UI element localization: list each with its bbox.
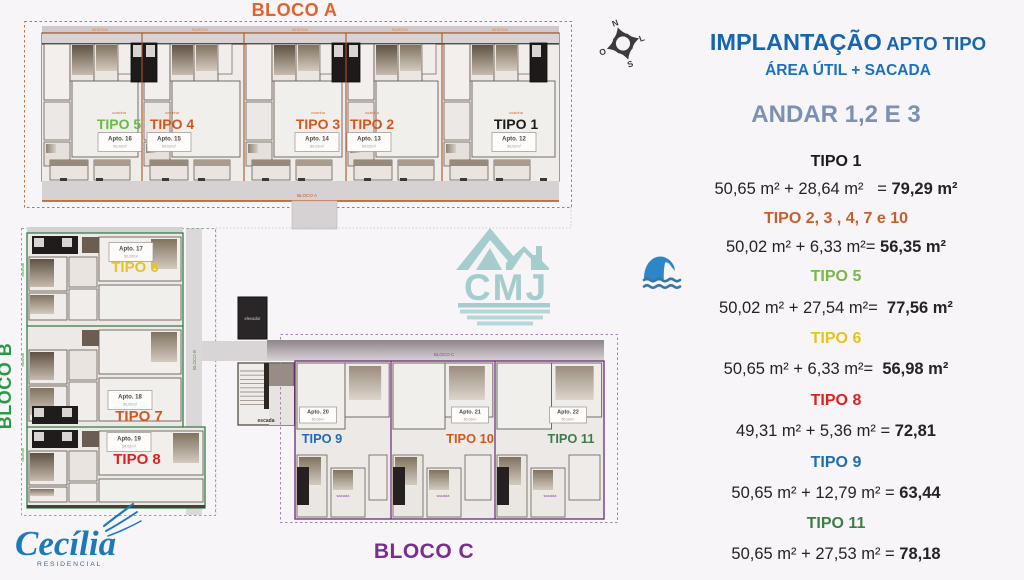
svg-text:sacada: sacada <box>437 493 451 498</box>
svg-text:BLOCO A: BLOCO A <box>492 28 508 32</box>
svg-text:TIPO 3: TIPO 3 <box>296 116 341 132</box>
svg-text:50,02m²: 50,02m² <box>362 145 377 149</box>
svg-text:sacada: sacada <box>337 493 351 498</box>
svg-text:TIPO 9: TIPO 9 <box>302 431 343 446</box>
svg-text:TIPO 6: TIPO 6 <box>111 259 159 276</box>
svg-text:BLOCO A: BLOCO A <box>192 28 208 32</box>
svg-text:Apto. 13: Apto. 13 <box>357 137 381 143</box>
svg-text:50,02m²: 50,02m² <box>162 145 177 149</box>
svg-text:BLOCO C: BLOCO C <box>374 540 474 563</box>
svg-text:TIPO 9: TIPO 9 <box>811 454 862 471</box>
svg-text:50,02m²: 50,02m² <box>312 418 326 422</box>
svg-text:cozinha: cozinha <box>165 110 180 115</box>
svg-text:BLOCO A: BLOCO A <box>92 28 108 32</box>
svg-text:TIPO 8: TIPO 8 <box>113 451 161 468</box>
svg-text:TIPO 11: TIPO 11 <box>548 431 595 446</box>
svg-text:BLOCO A: BLOCO A <box>297 193 317 198</box>
svg-text:Apto. 17: Apto. 17 <box>119 247 143 253</box>
svg-text:varanda: varanda <box>21 352 25 367</box>
svg-text:TIPO 8: TIPO 8 <box>811 392 862 409</box>
svg-text:50,02m²: 50,02m² <box>464 418 478 422</box>
svg-text:50,02m²: 50,02m² <box>124 255 139 259</box>
svg-text:50,02m²: 50,02m² <box>562 418 576 422</box>
svg-text:TIPO 7: TIPO 7 <box>115 408 163 425</box>
svg-text:Cecília: Cecília <box>15 524 116 563</box>
svg-text:Apto. 12: Apto. 12 <box>502 137 526 143</box>
svg-text:varanda: varanda <box>21 447 25 462</box>
svg-text:Apto. 16: Apto. 16 <box>108 137 132 143</box>
svg-text:IMPLANTAÇÃO APTO TIPO: IMPLANTAÇÃO APTO TIPO <box>710 28 986 55</box>
svg-text:BLOCO C: BLOCO C <box>434 352 455 357</box>
svg-text:sacada: sacada <box>544 493 558 498</box>
svg-text:50,65 m² + 27,53 m² = 78,18: 50,65 m² + 27,53 m² = 78,18 <box>731 545 940 563</box>
svg-text:ANDAR 1,2 E 3: ANDAR 1,2 E 3 <box>751 101 920 128</box>
svg-text:escada: escada <box>258 418 275 424</box>
svg-text:BLOCO B: BLOCO B <box>192 350 197 370</box>
svg-text:50,02m²: 50,02m² <box>310 145 325 149</box>
svg-text:TIPO 5: TIPO 5 <box>811 268 862 285</box>
svg-text:BLOCO A: BLOCO A <box>392 28 408 32</box>
svg-text:BLOCO B: BLOCO B <box>0 343 15 430</box>
svg-text:Apto. 19: Apto. 19 <box>117 437 141 443</box>
svg-text:50,65 m² + 28,64 m² = 79,29: 50,65 m² + 28,64 m² = 79,29 m² <box>714 180 958 198</box>
svg-text:50,02 m² + 27,54 m²= 77,56 m²: 50,02 m² + 27,54 m²= 77,56 m² <box>719 299 953 317</box>
svg-text:50,02m²: 50,02m² <box>507 145 522 149</box>
svg-text:TIPO 5: TIPO 5 <box>97 116 142 132</box>
svg-text:50,02m²: 50,02m² <box>122 445 137 449</box>
svg-text:Apto. 20: Apto. 20 <box>307 410 329 416</box>
svg-text:Apto. 14: Apto. 14 <box>305 137 329 143</box>
svg-text:BLOCO A: BLOCO A <box>252 0 338 20</box>
svg-text:RESIDENCIAL: RESIDENCIAL <box>37 561 102 568</box>
svg-text:CMJ: CMJ <box>464 267 548 308</box>
svg-text:50,65 m² + 12,79 m² = 63,44: 50,65 m² + 12,79 m² = 63,44 <box>731 484 941 502</box>
svg-text:Apto. 22: Apto. 22 <box>557 410 579 416</box>
svg-text:50,02m²: 50,02m² <box>123 403 138 407</box>
svg-text:TIPO 1: TIPO 1 <box>811 153 862 170</box>
svg-text:50,65 m² + 6,33 m²= 56,98 m²: 50,65 m² + 6,33 m²= 56,98 m² <box>724 360 949 378</box>
svg-text:TIPO 2: TIPO 2 <box>350 116 395 132</box>
svg-text:TIPO 1: TIPO 1 <box>494 116 539 132</box>
svg-text:50,02 m² + 6,33 m²= 56,35 m²: 50,02 m² + 6,33 m²= 56,35 m² <box>726 238 947 256</box>
svg-text:cozinha: cozinha <box>112 110 127 115</box>
svg-text:varanda: varanda <box>21 262 25 277</box>
svg-text:ÁREA ÚTIL + SACADA: ÁREA ÚTIL + SACADA <box>765 61 931 79</box>
svg-text:Apto. 21: Apto. 21 <box>459 410 481 416</box>
svg-text:cozinha: cozinha <box>365 110 380 115</box>
svg-text:TIPO 10: TIPO 10 <box>446 431 494 446</box>
svg-text:TIPO 6: TIPO 6 <box>811 330 862 347</box>
svg-text:Apto. 18: Apto. 18 <box>118 395 142 401</box>
svg-text:cozinha: cozinha <box>311 110 326 115</box>
svg-text:TIPO 11: TIPO 11 <box>807 515 866 532</box>
svg-text:TIPO 4: TIPO 4 <box>150 116 195 132</box>
svg-text:49,31 m² + 5,36 m² = 72,81: 49,31 m² + 5,36 m² = 72,81 <box>736 422 936 440</box>
svg-text:cozinha: cozinha <box>509 110 524 115</box>
svg-text:elevador: elevador <box>244 316 261 321</box>
svg-text:BLOCO A: BLOCO A <box>292 28 308 32</box>
svg-text:Apto. 15: Apto. 15 <box>157 137 181 143</box>
svg-text:50,02m²: 50,02m² <box>113 145 128 149</box>
svg-text:TIPO 2, 3 , 4, 7 e 10: TIPO 2, 3 , 4, 7 e 10 <box>764 210 908 227</box>
